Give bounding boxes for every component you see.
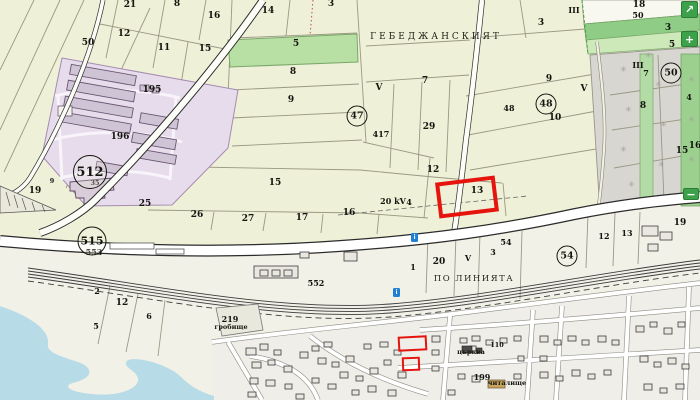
selected-parcel-highlight [435, 175, 499, 218]
building [588, 374, 595, 379]
building [248, 392, 256, 397]
building [252, 362, 261, 368]
orchard-symbol: ✳ [688, 115, 695, 124]
orchard-symbol: ✳ [620, 145, 627, 154]
building [472, 376, 480, 382]
building [368, 386, 376, 392]
building [398, 372, 406, 378]
building [556, 376, 563, 381]
building [380, 342, 388, 347]
building [540, 356, 547, 361]
building [318, 358, 326, 364]
orchard-symbol: ✳ [660, 120, 667, 129]
building [260, 344, 268, 350]
school-building [488, 380, 505, 388]
building [660, 388, 667, 393]
building [268, 360, 275, 365]
building [636, 326, 644, 332]
building [540, 336, 548, 342]
orchard-symbol: ✳ [625, 105, 632, 114]
building [296, 394, 304, 399]
building [582, 340, 589, 345]
building [432, 350, 439, 355]
building [664, 328, 672, 334]
orchard-symbol: ✳ [658, 160, 665, 169]
building [448, 390, 455, 395]
building [668, 358, 676, 364]
building [266, 380, 275, 386]
building [384, 360, 391, 365]
building [432, 336, 440, 342]
orchard-symbol: ✳ [688, 155, 695, 164]
building [640, 356, 648, 362]
building [642, 226, 658, 236]
building [650, 322, 657, 327]
church-building [462, 346, 472, 353]
zoom-out-button[interactable]: − [683, 188, 699, 200]
orchard-symbol: ✳ [620, 65, 627, 74]
selected-parcel-highlight [398, 335, 428, 351]
building [250, 378, 258, 384]
building [660, 232, 672, 240]
building [300, 352, 308, 358]
building [324, 342, 332, 347]
building [344, 252, 357, 261]
building [654, 362, 661, 367]
building [246, 348, 256, 355]
building [260, 270, 268, 276]
orchard-symbol: ✳ [688, 75, 695, 84]
building [272, 270, 280, 276]
building [540, 372, 548, 378]
platform [156, 249, 184, 254]
building [554, 340, 561, 345]
orchard-symbol: ✳ [628, 180, 635, 189]
building [458, 374, 465, 379]
building [568, 336, 576, 341]
building [346, 356, 354, 362]
poi-marker[interactable]: i [411, 233, 418, 242]
building [486, 340, 493, 345]
selected-parcel-highlight [402, 357, 420, 372]
building [328, 384, 336, 389]
map-viewport[interactable]: ✳✳✳✳✳✳✳✳✳✳✳✳ [0, 0, 700, 400]
zoom-in-button[interactable]: + [681, 31, 698, 47]
cemetery-block [216, 304, 263, 336]
building [518, 356, 524, 361]
building [356, 376, 363, 381]
building [432, 366, 439, 371]
building [678, 322, 685, 327]
building [572, 370, 580, 376]
building [274, 350, 281, 355]
poi-marker[interactable]: i [393, 288, 400, 297]
church-building [476, 348, 482, 353]
orchard-symbol: ✳ [655, 80, 662, 89]
building [460, 338, 467, 343]
building [598, 336, 606, 342]
building [682, 364, 689, 369]
building [364, 344, 371, 349]
green-parcel [228, 34, 358, 67]
orchard-symbol: ✳ [645, 51, 652, 60]
building [352, 390, 359, 395]
building [500, 338, 507, 343]
building [472, 336, 480, 341]
building [676, 384, 684, 389]
building [644, 384, 652, 390]
building [284, 366, 292, 372]
building [388, 390, 396, 396]
platform [110, 243, 154, 249]
building [284, 270, 292, 276]
building [514, 336, 521, 341]
building [312, 346, 319, 351]
building [370, 368, 378, 374]
fullscreen-button[interactable]: ↗ [681, 1, 698, 18]
building [604, 370, 611, 375]
building [300, 252, 309, 258]
building [312, 378, 319, 383]
building [514, 374, 521, 379]
building [285, 384, 292, 389]
building [340, 372, 348, 378]
map-base-layer: ✳✳✳✳✳✳✳✳✳✳✳✳ [0, 0, 700, 400]
building [612, 340, 619, 345]
building [332, 362, 339, 367]
building [648, 244, 658, 251]
